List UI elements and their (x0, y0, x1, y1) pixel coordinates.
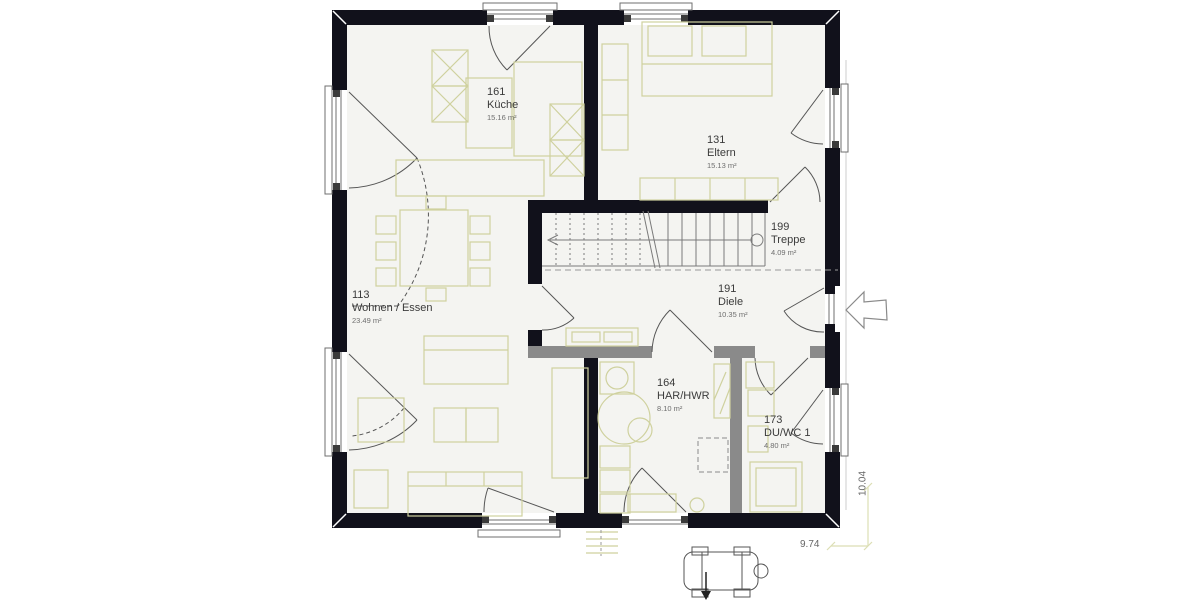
room-number: 173 (764, 414, 810, 427)
room-name: Treppe (771, 234, 805, 247)
room-number: 161 (487, 86, 518, 99)
room-label-treppe: 199 Treppe 4.09 m² (771, 221, 805, 257)
door-bottom-har (622, 513, 688, 528)
room-number: 113 (352, 289, 433, 302)
window-top-kitchen-door (483, 3, 557, 25)
room-area: 8.10 m² (657, 404, 710, 413)
window-right-lower (825, 384, 848, 456)
room-number: 164 (657, 377, 710, 390)
room-area: 23.49 m² (352, 316, 433, 325)
entrance-arrow-icon (846, 292, 887, 328)
room-name: Eltern (707, 147, 737, 160)
room-label-wohnen: 113 Wohnen / Essen 23.49 m² (352, 289, 433, 325)
window-left-upper (325, 86, 347, 194)
room-area: 15.13 m² (707, 161, 737, 170)
room-name: DU/WC 1 (764, 427, 810, 440)
room-number: 131 (707, 134, 737, 147)
room-label-har-hwr: 164 HAR/HWR 8.10 m² (657, 377, 710, 413)
room-label-du-wc: 173 DU/WC 1 4.80 m² (764, 414, 810, 450)
room-label-eltern: 131 Eltern 15.13 m² (707, 134, 737, 170)
room-number: 191 (718, 283, 748, 296)
window-right-upper (825, 84, 848, 152)
room-label-diele: 191 Diele 10.35 m² (718, 283, 748, 319)
room-name: Küche (487, 99, 518, 112)
dimension-width-label: 9.74 (800, 539, 819, 550)
dimension-height-label: 10.04 (858, 467, 869, 501)
room-label-kueche: 161 Küche 15.16 m² (487, 86, 518, 122)
entrance-door (825, 286, 840, 332)
floor-plan-drawing (0, 0, 1200, 600)
window-left-lower (325, 348, 347, 456)
room-number: 199 (771, 221, 805, 234)
room-area: 10.35 m² (718, 310, 748, 319)
room-name: Diele (718, 296, 748, 309)
room-name: Wohnen / Essen (352, 302, 433, 315)
room-area: 4.80 m² (764, 441, 810, 450)
car-icon (684, 547, 768, 597)
room-area: 4.09 m² (771, 248, 805, 257)
room-name: HAR/HWR (657, 390, 710, 403)
floor-plan: 161 Küche 15.16 m² 131 Eltern 15.13 m² 1… (0, 0, 1200, 600)
room-area: 15.16 m² (487, 113, 518, 122)
exterior-steps (586, 532, 618, 553)
